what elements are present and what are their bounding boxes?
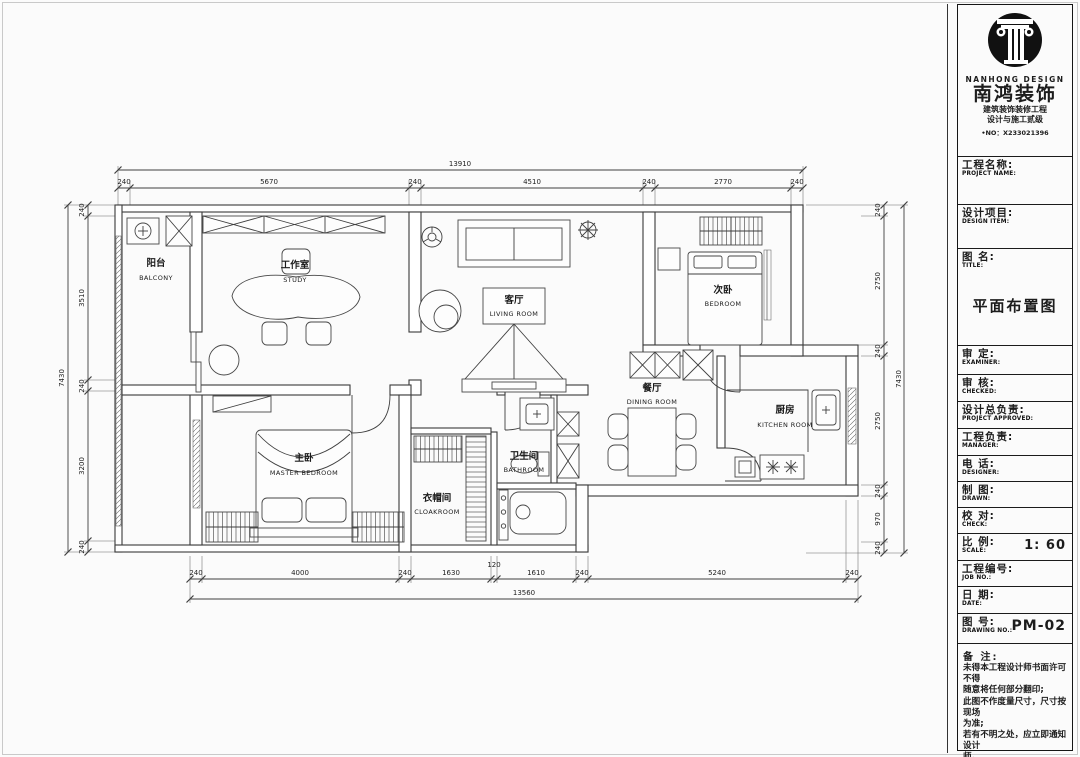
ceiling-fan-icon [422, 227, 442, 247]
study-cabinet [203, 216, 385, 233]
field-label-cn: 校 对: [962, 510, 1068, 522]
room-label-en: CLOAKROOM [414, 508, 460, 516]
balcony-window [116, 236, 121, 526]
dim-label: 4000 [291, 569, 309, 577]
field-label-cn: 制 图: [962, 484, 1068, 496]
dim-label: 120 [487, 561, 500, 569]
bedroom-bed [688, 252, 762, 345]
dim-label: 1610 [527, 569, 545, 577]
field-check: 校 对: CHECK: [958, 508, 1072, 534]
company-cert-line1: 建筑装饰装修工程 [958, 105, 1072, 115]
dim-label: 240 [575, 569, 588, 577]
room-label-en: LIVING ROOM [490, 310, 539, 318]
field-label-cn: 审 定: [962, 348, 1068, 360]
study-chair [306, 322, 331, 345]
dim-right-total: 7430 [895, 370, 903, 388]
room-label-cloakroom: 衣帽间 [423, 492, 452, 504]
dim-label: 240 [189, 569, 202, 577]
master-bed [250, 430, 358, 537]
room-label-bathroom: 卫生间 [510, 450, 539, 462]
field-drawn: 制 图: DRAWN: [958, 482, 1072, 508]
field-label-en: EXAMINER: [962, 360, 1068, 366]
tv-cabinet [462, 379, 566, 392]
room-label-kitchen: 厨房 [775, 404, 794, 416]
dim-label: 240 [78, 379, 86, 392]
field-label-cn: 日 期: [962, 589, 1068, 601]
dining-chair [608, 414, 628, 439]
dim-label: 240 [874, 541, 882, 554]
field-label-cn: 工程名称: [962, 159, 1068, 171]
field-label-cn: 设计总负责: [962, 404, 1068, 416]
field-label-en: TITLE: [962, 263, 1068, 269]
dim-label: 3510 [78, 289, 86, 307]
dim-label: 240 [78, 203, 86, 216]
study-round-chair [209, 345, 239, 375]
master-bedroom-window [193, 420, 200, 508]
field-title: 图 名: TITLE: 平面布置图 [958, 249, 1072, 346]
dim-label: 970 [874, 512, 882, 525]
field-date: 日 期: DATE: [958, 587, 1072, 614]
dim-label: 240 [117, 178, 130, 186]
dining-chair [676, 414, 696, 439]
bedroom-nightstand [658, 248, 680, 270]
dim-label: 1630 [442, 569, 460, 577]
dim-label: 240 [790, 178, 803, 186]
kitchen-appliance [735, 457, 755, 477]
room-label-dining: 餐厅 [641, 382, 662, 394]
dim-bottom-total: 13560 [513, 589, 535, 597]
room-label-en: BALCONY [139, 274, 173, 282]
note-line: 随意将任何部分翻印; [963, 685, 1067, 696]
duct-shaft [557, 412, 579, 478]
dim-label: 240 [398, 569, 411, 577]
field-label-en: JOB NO.: [962, 575, 1068, 581]
room-label-en: DINING ROOM [627, 398, 677, 406]
room-label-master: 主卧 [294, 452, 314, 464]
titleblock: NANHONG DESIGN 南鸿装饰 建筑装饰装修工程 设计与施工贰级 •NO… [957, 4, 1073, 751]
master-shelf [213, 396, 271, 412]
kitchen-sink [812, 390, 840, 430]
living-room-label-box [483, 288, 545, 324]
field-label-en: DRAWN: [962, 496, 1068, 502]
dining-chair [608, 445, 628, 470]
drawing-title: 平面布置图 [962, 295, 1068, 316]
washbasin [520, 398, 554, 430]
field-label-en: MANAGER: [962, 443, 1068, 449]
field-label-en: PROJECT NAME: [962, 171, 1068, 177]
field-label-en: CHECK: [962, 522, 1068, 528]
field-design-item: 设计项目: DESIGN ITEM: [958, 205, 1072, 249]
field-project-approved: 设计总负责: PROJECT APPROVED: [958, 402, 1072, 429]
note-line: 为准; [963, 719, 1067, 730]
roman-column-icon [984, 11, 1046, 69]
field-examiner: 审 定: EXAMINER: [958, 346, 1072, 375]
note-line: 此图不作度量尺寸，尺寸按现场 [963, 697, 1067, 719]
field-label-en: DESIGN ITEM: [962, 219, 1068, 225]
balcony-cabinet [166, 216, 192, 246]
dim-label: 240 [408, 178, 421, 186]
master-bedroom-door [352, 395, 390, 433]
dim-label: 240 [874, 484, 882, 497]
cloakroom-racks [414, 436, 486, 541]
titleblock-outer-line [947, 4, 948, 753]
company-name-cn: 南鸿装饰 [958, 84, 1072, 105]
dim-label: 3200 [78, 457, 86, 475]
field-phone: 电 话: DESIGNER: [958, 456, 1072, 482]
notes-section: 备 注: 未得本工程设计师书面许可不得 随意将任何部分翻印; 此图不作度量尺寸，… [958, 644, 1072, 757]
dining-chair [676, 445, 696, 470]
note-line: 若有不明之处，应立即通知设计 [963, 730, 1067, 752]
armchair [419, 290, 461, 332]
plant [578, 220, 598, 240]
scale-value: 1: 60 [1024, 538, 1066, 553]
dim-label: 2770 [714, 178, 732, 186]
room-label-en: BEDROOM [705, 300, 742, 308]
field-label-en: CHECKED: [962, 389, 1068, 395]
field-label-cn: 图 名: [962, 251, 1068, 263]
shower-area [499, 490, 566, 540]
notes-label: 备 注: [963, 648, 1067, 663]
field-label-cn: 电 话: [962, 458, 1068, 470]
company-cert-line2: 设计与施工贰级 [958, 115, 1072, 125]
dim-left-total: 7430 [58, 369, 66, 387]
room-label-study: 工作室 [281, 259, 310, 271]
field-label-cn: 工程编号: [962, 563, 1068, 575]
field-label-cn: 工程负责: [962, 431, 1068, 443]
field-label-en: DESIGNER: [962, 470, 1068, 476]
dim-label: 240 [78, 540, 86, 553]
floor-plan: 13910 240 5670 240 4510 240 2770 240 240… [0, 0, 940, 757]
note-line: 未得本工程设计师书面许可不得 [963, 663, 1067, 685]
dim-label: 2750 [874, 412, 882, 430]
dim-label: 240 [642, 178, 655, 186]
dining-table [628, 408, 676, 476]
dim-label: 5240 [708, 569, 726, 577]
hallway-cabinet [630, 350, 713, 380]
dim-label: 240 [874, 203, 882, 216]
field-job-no: 工程编号: JOB NO.: [958, 561, 1072, 587]
stove [760, 455, 804, 479]
field-checked: 审 核: CHECKED: [958, 375, 1072, 402]
field-drawing-no: 图 号: DRAWING NO.: PM-02 [958, 614, 1072, 644]
dim-label: 240 [874, 344, 882, 357]
room-label-balcony: 阳台 [146, 257, 166, 269]
company-header: NANHONG DESIGN 南鸿装饰 建筑装饰装修工程 设计与施工贰级 •NO… [958, 5, 1072, 157]
room-label-living: 客厅 [503, 294, 524, 306]
drawing-no-value: PM-02 [1012, 618, 1067, 634]
projection-lines [465, 324, 563, 379]
dim-label: 4510 [523, 178, 541, 186]
field-label-cn: 审 核: [962, 377, 1068, 389]
room-label-en: KITCHEN ROOM [757, 421, 812, 429]
drawing-sheet: 13910 240 5670 240 4510 240 2770 240 240… [0, 0, 1080, 757]
dim-label: 2750 [874, 272, 882, 290]
dim-top-total: 13910 [449, 160, 471, 168]
room-label-en: STUDY [283, 276, 306, 284]
room-label-bedroom: 次卧 [713, 284, 733, 296]
note-line: 师。 [963, 752, 1067, 757]
dim-label: 5670 [260, 178, 278, 186]
field-project-name: 工程名称: PROJECT NAME: [958, 157, 1072, 205]
sofa [458, 220, 570, 267]
field-manager: 工程负责: MANAGER: [958, 429, 1072, 456]
bedroom-wardrobe [700, 217, 762, 245]
dim-label: 240 [845, 569, 858, 577]
field-scale: 比 例: SCALE: 1: 60 [958, 534, 1072, 561]
study-chair [262, 322, 287, 345]
field-label-cn: 设计项目: [962, 207, 1068, 219]
company-cert-no: •NO：X233021396 [958, 127, 1072, 137]
kitchen-window [848, 388, 856, 444]
field-label-en: PROJECT APPROVED: [962, 416, 1068, 422]
washing-machine [127, 218, 159, 244]
field-label-en: DATE: [962, 601, 1068, 607]
balcony-sliding-door [191, 332, 201, 392]
room-label-en: MASTER BEDROOM [270, 469, 338, 477]
bedroom-window [764, 250, 771, 320]
room-label-en: BATHROOM [504, 466, 545, 474]
